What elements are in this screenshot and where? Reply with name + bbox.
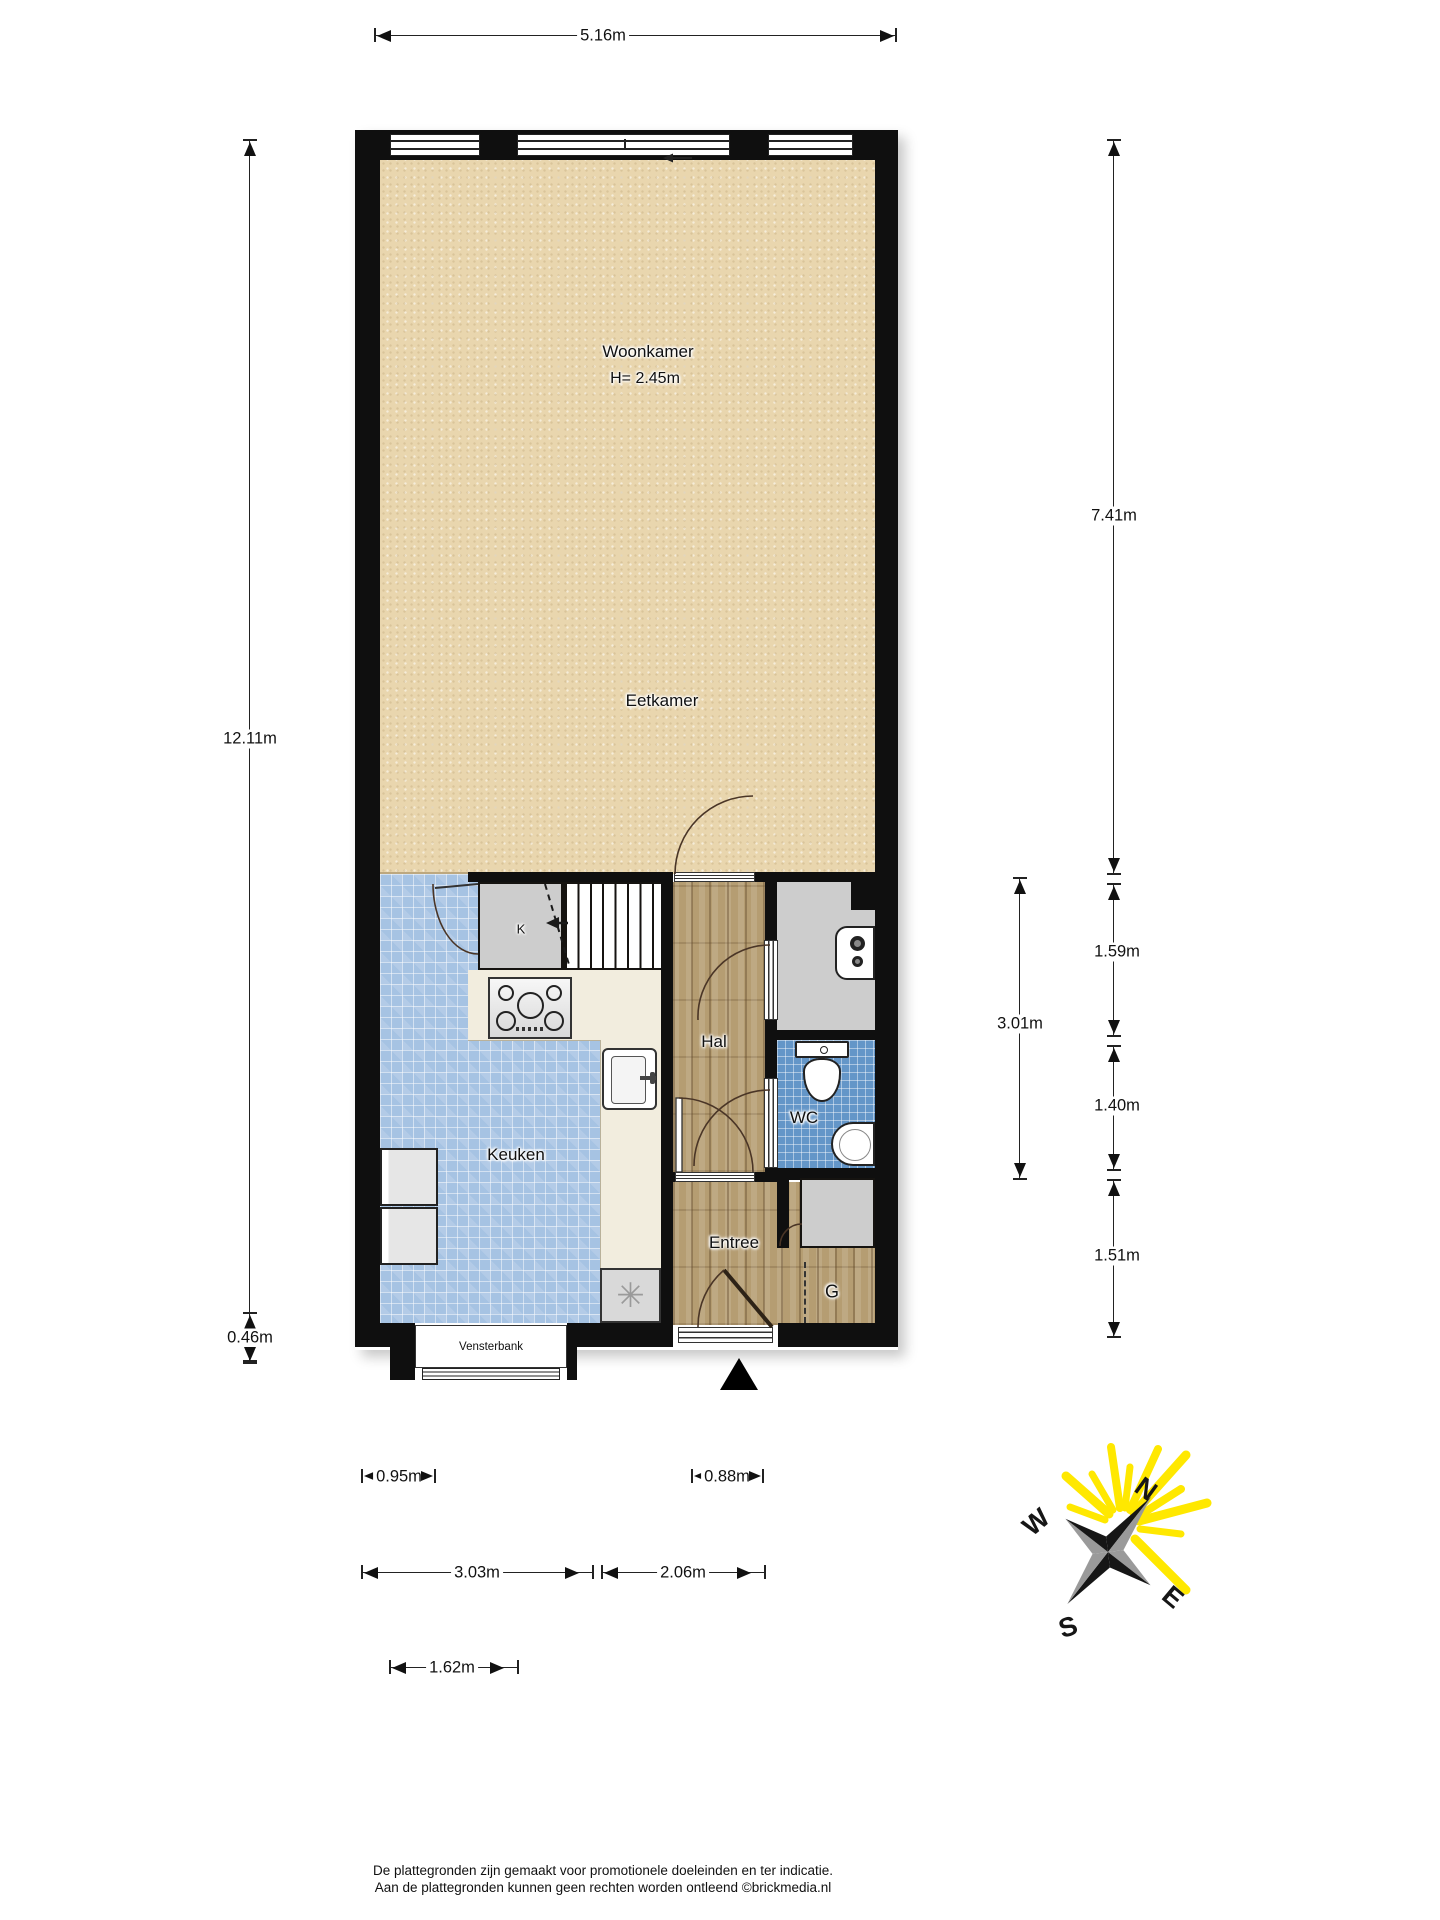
dim-top-tick-right — [895, 28, 897, 42]
label-vensterbank: Vensterbank — [459, 1341, 523, 1353]
compass-label-west: W — [1017, 1502, 1056, 1542]
dim-offset-tick-top — [243, 1312, 257, 1314]
dim-left-tick-top — [243, 139, 257, 141]
dim-r2-arrow-top — [1108, 886, 1120, 900]
dim-r2-label: 1.59m — [1091, 943, 1143, 962]
dim-kitchen-arrow-left — [364, 1567, 378, 1579]
label-hal: Hal — [701, 1032, 727, 1052]
dim-r-group-tick-top — [1013, 877, 1027, 879]
dim-r2-arrow-bottom — [1108, 1020, 1120, 1034]
dim-r2-tick-top — [1107, 883, 1121, 885]
dim-kitchen-label: 3.03m — [451, 1564, 503, 1583]
dim-left-line — [249, 140, 250, 1361]
footer-line-1: De plattegronden zijn gemaakt voor promo… — [300, 1862, 906, 1879]
dim-r3-tick-bottom — [1107, 1169, 1121, 1171]
dim-r1-label: 7.41m — [1088, 507, 1140, 526]
dim-door-tick-left — [691, 1469, 693, 1483]
dim-window-tick-left — [389, 1660, 391, 1674]
dim-kitchen-arrow-right — [565, 1567, 579, 1579]
dim-offset-tick-bottom — [243, 1362, 257, 1364]
dim-top-tick-left — [374, 28, 376, 42]
dim-r-group-arrow-bottom — [1014, 1163, 1026, 1177]
dim-top-arrow-right — [880, 30, 894, 42]
dim-r-group-label: 3.01m — [994, 1015, 1046, 1034]
dim-r3-label: 1.40m — [1091, 1097, 1143, 1116]
dim-fridge-tick-right — [434, 1469, 436, 1483]
dim-r4-arrow-top — [1108, 1182, 1120, 1196]
dim-fridge-arrow-right — [421, 1471, 433, 1481]
dim-r4-arrow-bottom — [1108, 1322, 1120, 1336]
door-arc-wc — [694, 1090, 770, 1166]
dim-r4-label: 1.51m — [1091, 1247, 1143, 1266]
floorplan-page: ✳ Woo — [0, 0, 1440, 1920]
dim-left-label: 12.11m — [220, 730, 280, 749]
dim-r3-arrow-top — [1108, 1048, 1120, 1062]
label-keuken: Keuken — [487, 1145, 545, 1165]
dim-entree-arrow-left — [604, 1567, 618, 1579]
label-wc: WC — [790, 1108, 818, 1128]
dim-offset-label: 0.46m — [224, 1329, 276, 1348]
door-arc-meterkast — [698, 945, 770, 1020]
door-arc-hal-entree — [679, 1098, 753, 1172]
dim-r3-tick-top — [1107, 1045, 1121, 1047]
dim-entree-arrow-right — [737, 1567, 751, 1579]
door-arc-eetkamer — [675, 796, 753, 874]
door-arc-entree-closet — [780, 1224, 802, 1246]
front-door-leaf — [724, 1270, 772, 1327]
dim-window-arrow-left — [392, 1662, 406, 1674]
label-garderobe: G — [825, 1282, 839, 1303]
door-leaf-k-closet — [435, 884, 478, 888]
stairs-arrow-icon — [546, 917, 559, 929]
dim-left-arrow-top — [244, 142, 256, 156]
dim-offset-arrow-bottom — [244, 1347, 256, 1361]
dim-r-group-arrow-top — [1014, 880, 1026, 894]
dim-fridge-tick-left — [361, 1469, 363, 1483]
door-swing-overlay — [355, 130, 898, 1400]
compass-rose: N W E S — [1000, 1430, 1220, 1650]
label-woonkamer-height: H= 2.45m — [610, 370, 680, 388]
dim-kitchen-tick-right — [592, 1565, 594, 1579]
dim-window-tick-right — [517, 1660, 519, 1674]
dim-top-line — [375, 35, 896, 36]
dim-fridge-label: 0.95m — [373, 1468, 425, 1487]
dim-r1-tick-bottom — [1107, 873, 1121, 875]
footer-line-2: Aan de plattegronden kunnen geen rechten… — [300, 1879, 906, 1896]
dim-offset-arrow-top — [244, 1315, 256, 1329]
dim-entree-tick-right — [764, 1565, 766, 1579]
dim-r-group-tick-bottom — [1013, 1178, 1027, 1180]
dim-top-label: 5.16m — [577, 27, 629, 46]
dim-r1-arrow-top — [1108, 142, 1120, 156]
compass-label-south: S — [1055, 1610, 1081, 1644]
dim-r1-arrow-bottom — [1108, 858, 1120, 872]
dim-r4-tick-bottom — [1107, 1336, 1121, 1338]
label-eetkamer: Eetkamer — [626, 691, 699, 711]
dim-r3-arrow-bottom — [1108, 1154, 1120, 1168]
dim-entree-label: 2.06m — [657, 1564, 709, 1583]
slide-arrow-icon — [663, 154, 673, 163]
dim-door-arrow-right — [749, 1471, 761, 1481]
label-woonkamer: Woonkamer — [602, 342, 693, 362]
dim-window-label: 1.62m — [426, 1659, 478, 1678]
dim-r4-tick-top — [1107, 1179, 1121, 1181]
dim-door-label: 0.88m — [701, 1468, 753, 1487]
dim-window-arrow-right — [490, 1662, 504, 1674]
footer-disclaimer: De plattegronden zijn gemaakt voor promo… — [300, 1862, 906, 1896]
dim-entree-tick-left — [601, 1565, 603, 1579]
label-entree: Entree — [709, 1233, 759, 1253]
front-door-arc — [698, 1270, 724, 1327]
dim-r2-tick-bottom — [1107, 1035, 1121, 1037]
dim-r1-tick-top — [1107, 139, 1121, 141]
label-k-closet: K — [517, 922, 526, 937]
door-arc-k-closet — [433, 884, 478, 954]
dim-top-arrow-left — [377, 30, 391, 42]
dim-door-tick-right — [762, 1469, 764, 1483]
door-leaf-hal-entree — [676, 1098, 682, 1172]
dim-kitchen-tick-left — [361, 1565, 363, 1579]
